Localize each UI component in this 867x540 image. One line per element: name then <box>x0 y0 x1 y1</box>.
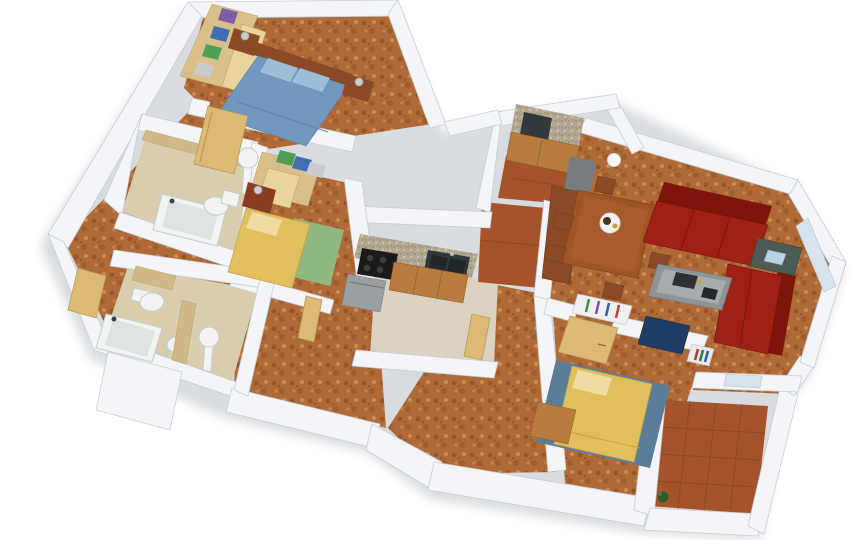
bedroom2-dresser <box>530 402 576 444</box>
balcony-plant-leaf <box>658 492 662 496</box>
bathtub-2-faucet <box>112 317 117 322</box>
table-lamp-right <box>355 78 363 86</box>
sink-2 <box>199 327 219 347</box>
balcony <box>658 492 669 503</box>
table-lamp-left <box>241 32 249 40</box>
floorplan-render <box>0 0 867 540</box>
kids-lamp <box>254 186 262 194</box>
sink-1 <box>238 148 258 168</box>
kitchen-appliance <box>342 274 386 312</box>
south-window <box>724 374 762 388</box>
kitchen-faucet <box>450 252 454 256</box>
coffee-table-figurine <box>697 280 702 285</box>
wall-lamp <box>608 154 621 167</box>
bathtub-1-faucet <box>170 199 175 204</box>
floorplan-stage <box>0 0 867 540</box>
plate-food-orange <box>613 224 618 229</box>
plate-food-dark <box>603 217 611 225</box>
